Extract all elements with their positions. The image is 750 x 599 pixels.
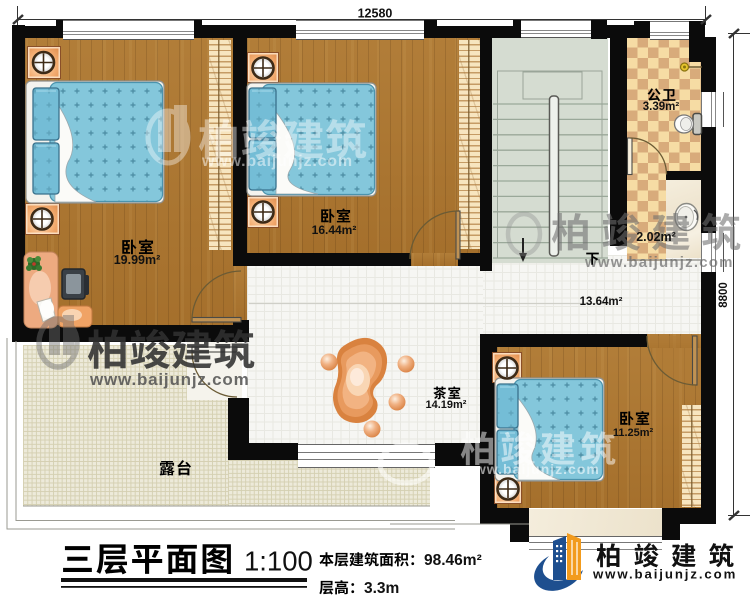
svg-text:www.baijunjz.com: www.baijunjz.com	[584, 254, 734, 271]
svg-text:16.44m²: 16.44m²	[312, 223, 357, 237]
svg-text:2.02m²: 2.02m²	[636, 230, 676, 244]
svg-text:11.25m²: 11.25m²	[613, 427, 654, 439]
svg-text:12580: 12580	[358, 7, 393, 21]
svg-text:19.99m²: 19.99m²	[114, 253, 161, 267]
svg-text:14.19m²: 14.19m²	[426, 399, 467, 411]
svg-text:www.baijunjz.com: www.baijunjz.com	[592, 567, 737, 582]
svg-text:13.64m²: 13.64m²	[580, 296, 623, 308]
svg-text:www.baijunjz.com: www.baijunjz.com	[201, 153, 353, 170]
svg-text:3.39m²: 3.39m²	[643, 101, 680, 113]
svg-text:3.3m: 3.3m	[364, 580, 399, 597]
svg-text:98.46m²: 98.46m²	[424, 552, 482, 569]
svg-text:www.baijunjz.com: www.baijunjz.com	[462, 461, 600, 477]
svg-text:8800: 8800	[718, 282, 730, 308]
svg-text:1:100: 1:100	[244, 546, 313, 577]
svg-text:www.baijunjz.com: www.baijunjz.com	[89, 370, 250, 389]
